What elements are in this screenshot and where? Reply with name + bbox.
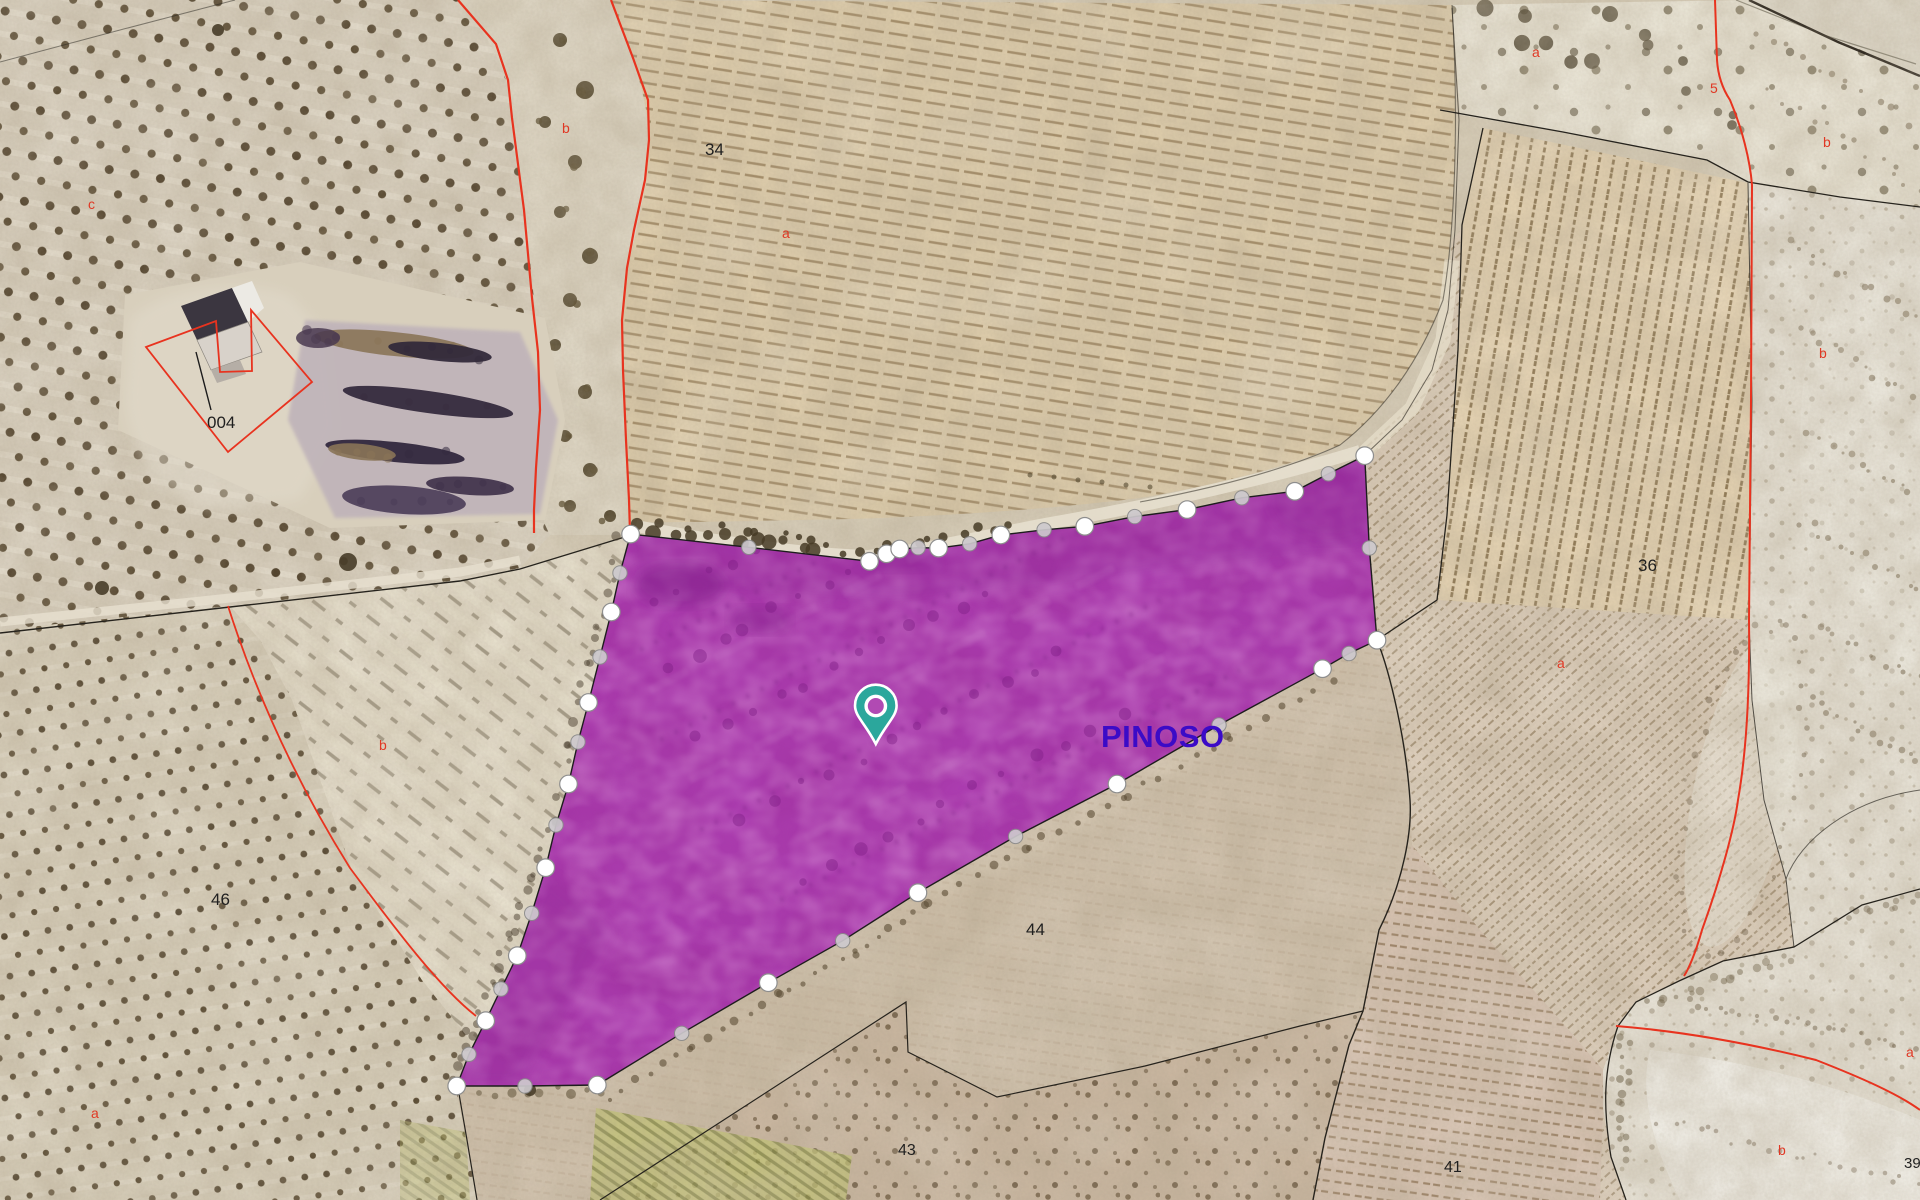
svg-text:46: 46 (211, 890, 230, 909)
svg-text:c: c (88, 196, 95, 212)
svg-text:a: a (91, 1105, 99, 1121)
svg-text:b: b (1819, 345, 1827, 361)
svg-text:a: a (1557, 655, 1565, 671)
svg-text:5: 5 (1710, 80, 1718, 96)
svg-text:39: 39 (1904, 1155, 1920, 1172)
svg-text:43: 43 (898, 1142, 916, 1159)
svg-text:b: b (1823, 134, 1831, 150)
svg-text:a: a (1532, 44, 1540, 60)
svg-text:004: 004 (207, 413, 235, 432)
svg-text:34: 34 (705, 140, 724, 159)
svg-text:41: 41 (1444, 1159, 1462, 1176)
svg-text:b: b (379, 737, 387, 753)
svg-text:b: b (1778, 1142, 1786, 1158)
svg-text:a: a (1906, 1044, 1914, 1060)
svg-text:b: b (562, 120, 570, 136)
svg-text:36: 36 (1638, 556, 1657, 575)
svg-text:a: a (782, 225, 790, 241)
svg-text:PINOSO: PINOSO (1101, 719, 1225, 754)
svg-text:44: 44 (1026, 920, 1045, 939)
